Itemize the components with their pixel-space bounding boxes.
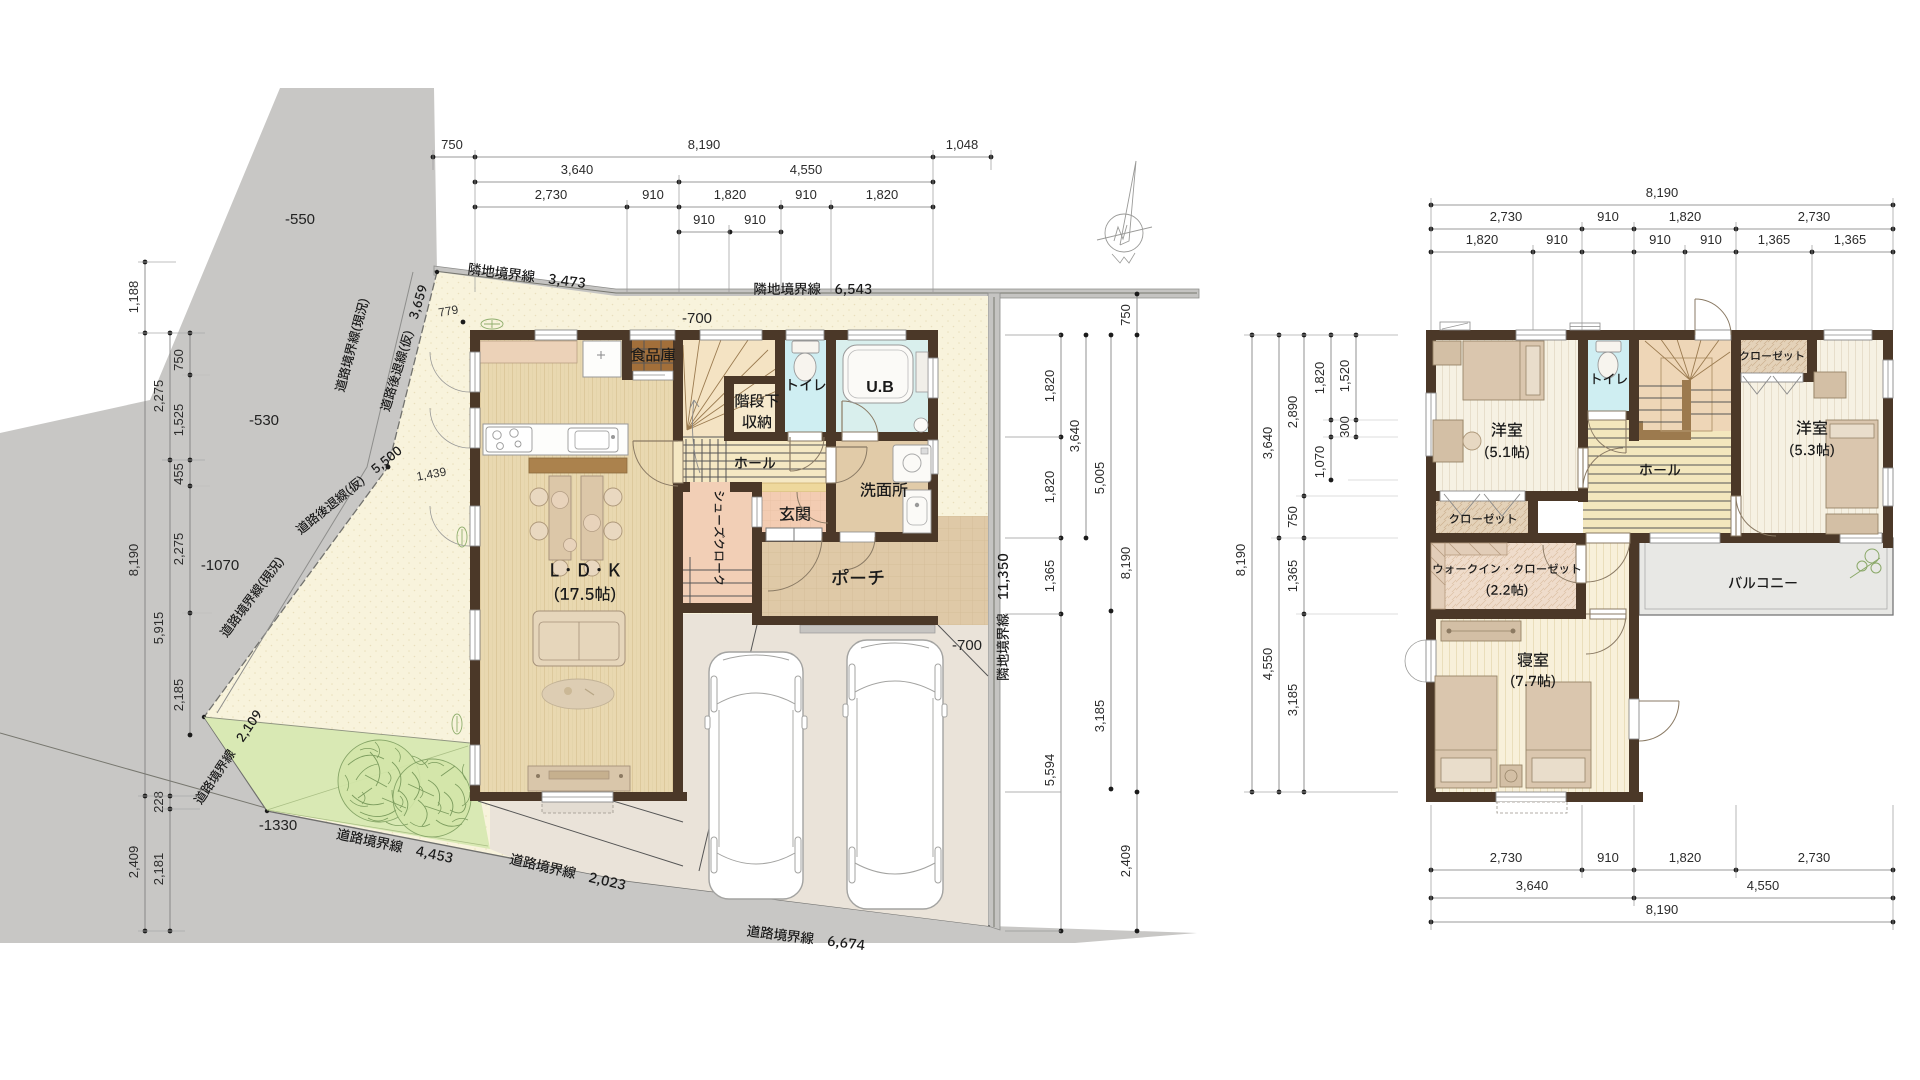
svg-text:1,820: 1,820 <box>1669 850 1702 865</box>
svg-text:1,070: 1,070 <box>1312 446 1327 479</box>
svg-text:3,640: 3,640 <box>1260 427 1275 460</box>
svg-text:-550: -550 <box>285 211 315 228</box>
svg-text:910: 910 <box>795 187 817 202</box>
svg-text:5,005: 5,005 <box>1092 462 1107 495</box>
svg-text:1,820: 1,820 <box>1466 232 1499 247</box>
svg-text:910: 910 <box>744 212 766 227</box>
svg-text:1,520: 1,520 <box>1337 360 1352 393</box>
svg-text:-700: -700 <box>952 637 982 654</box>
svg-text:1,820: 1,820 <box>1312 362 1327 395</box>
svg-text:-700: -700 <box>682 310 712 327</box>
svg-text:910: 910 <box>1546 232 1568 247</box>
svg-text:300: 300 <box>1337 416 1352 438</box>
svg-text:3,640: 3,640 <box>1516 878 1549 893</box>
svg-text:750: 750 <box>1285 506 1300 528</box>
svg-text:2,409: 2,409 <box>1118 845 1133 878</box>
svg-text:2,185: 2,185 <box>171 679 186 712</box>
svg-text:8,190: 8,190 <box>1646 185 1679 200</box>
svg-text:910: 910 <box>642 187 664 202</box>
svg-text:2,730: 2,730 <box>535 187 568 202</box>
svg-text:2,730: 2,730 <box>1490 209 1523 224</box>
svg-text:3,185: 3,185 <box>1285 684 1300 717</box>
svg-text:-1330: -1330 <box>259 817 297 834</box>
svg-text:4,550: 4,550 <box>1260 648 1275 681</box>
svg-text:8,190: 8,190 <box>1118 547 1133 580</box>
svg-text:2,181: 2,181 <box>151 853 166 886</box>
svg-text:910: 910 <box>1700 232 1722 247</box>
svg-text:5,594: 5,594 <box>1042 754 1057 787</box>
svg-text:1,365: 1,365 <box>1834 232 1867 247</box>
svg-text:3,185: 3,185 <box>1092 700 1107 733</box>
svg-text:2,409: 2,409 <box>126 846 141 879</box>
svg-text:8,190: 8,190 <box>126 544 141 577</box>
svg-text:2,275: 2,275 <box>171 533 186 566</box>
svg-text:750: 750 <box>1118 304 1133 326</box>
svg-text:1,820: 1,820 <box>866 187 899 202</box>
svg-text:1,820: 1,820 <box>714 187 747 202</box>
svg-text:2,730: 2,730 <box>1798 209 1831 224</box>
svg-text:1,188: 1,188 <box>126 281 141 314</box>
svg-text:1,820: 1,820 <box>1669 209 1702 224</box>
svg-text:2,275: 2,275 <box>151 380 166 413</box>
svg-text:228: 228 <box>151 791 166 813</box>
svg-text:4,550: 4,550 <box>1747 878 1780 893</box>
svg-text:750: 750 <box>441 137 463 152</box>
svg-text:910: 910 <box>693 212 715 227</box>
svg-text:8,190: 8,190 <box>688 137 721 152</box>
svg-text:1,365: 1,365 <box>1042 560 1057 593</box>
svg-text:455: 455 <box>171 463 186 485</box>
svg-text:2,890: 2,890 <box>1285 396 1300 429</box>
svg-text:-1070: -1070 <box>201 557 239 574</box>
svg-text:1,365: 1,365 <box>1285 560 1300 593</box>
svg-text:-530: -530 <box>249 412 279 429</box>
svg-text:4,550: 4,550 <box>790 162 823 177</box>
svg-text:2,730: 2,730 <box>1490 850 1523 865</box>
svg-text:8,190: 8,190 <box>1646 902 1679 917</box>
svg-text:3,640: 3,640 <box>561 162 594 177</box>
svg-text:U.B: U.B <box>866 379 894 396</box>
svg-text:750: 750 <box>171 349 186 371</box>
svg-text:910: 910 <box>1597 209 1619 224</box>
svg-text:910: 910 <box>1597 850 1619 865</box>
svg-text:2,730: 2,730 <box>1798 850 1831 865</box>
svg-text:1,048: 1,048 <box>946 137 979 152</box>
svg-text:8,190: 8,190 <box>1233 544 1248 577</box>
svg-text:5,915: 5,915 <box>151 612 166 645</box>
svg-text:1,365: 1,365 <box>1758 232 1791 247</box>
svg-text:3,640: 3,640 <box>1067 420 1082 453</box>
svg-text:1,820: 1,820 <box>1042 370 1057 403</box>
svg-text:1,820: 1,820 <box>1042 471 1057 504</box>
svg-text:1,525: 1,525 <box>171 404 186 437</box>
svg-text:910: 910 <box>1649 232 1671 247</box>
